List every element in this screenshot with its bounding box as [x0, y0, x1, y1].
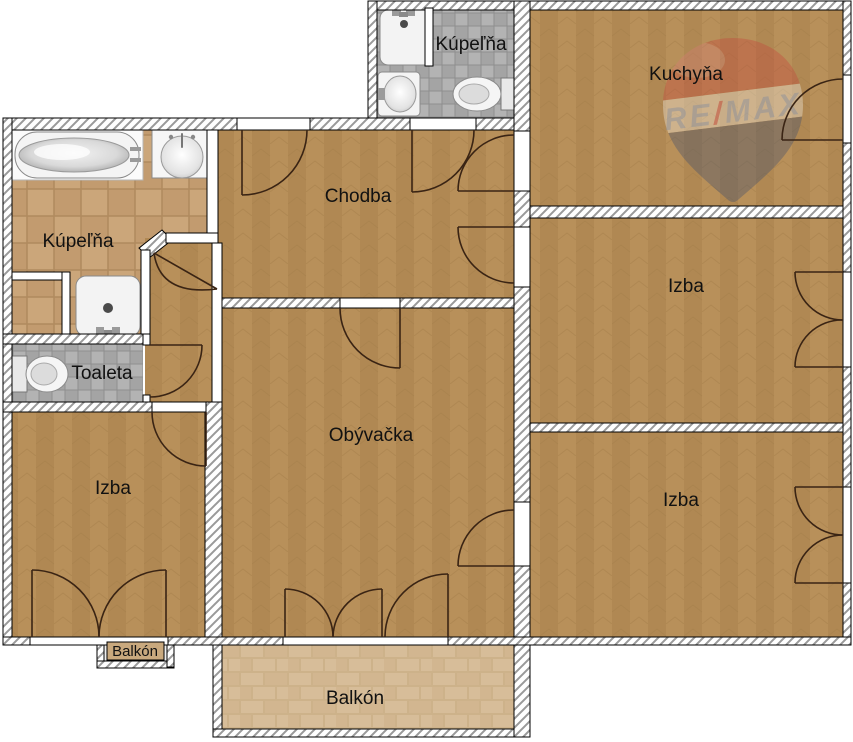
opening-living-room-door: [340, 298, 400, 308]
round-sink-icon: [152, 130, 212, 178]
wall-corridor-left: [141, 250, 150, 334]
floor-plan-canvas: RE/MAX: [0, 0, 853, 742]
wall-corridor-right: [212, 243, 222, 402]
wall-rooms-right-divider: [530, 423, 843, 432]
wall-closet-top: [12, 272, 70, 280]
remax-re: RE: [662, 97, 715, 138]
label-bathroom-top: Kúpeľňa: [435, 34, 506, 55]
label-room-right-bottom: Izba: [663, 490, 699, 511]
wall-balcony-large-right: [514, 645, 530, 737]
sink-top-icon: [378, 72, 420, 116]
wall-shower-stub: [425, 8, 433, 66]
wall-balcony-large-bottom: [213, 729, 524, 737]
floor-plan: RE/MAX: [0, 0, 853, 742]
bathtub-icon: [15, 132, 141, 178]
opening-room-right-bottom-window: [843, 487, 851, 583]
wall-balcony-small-right: [167, 645, 174, 667]
wall-top-right-section: [368, 1, 851, 10]
wall-closet-right: [62, 272, 70, 334]
toilet-top-icon: [453, 77, 515, 111]
label-kitchen: Kuchyňa: [649, 64, 723, 85]
toilet-wc-icon: [12, 356, 68, 392]
wall-toilet-right-bottom: [143, 395, 150, 402]
opening-kitchen-window: [843, 75, 851, 143]
wall-bathroom-right: [207, 130, 218, 233]
opening-bathroom-top: [410, 118, 476, 130]
label-toilet: Toaleta: [71, 363, 133, 384]
label-bathroom-main: Kúpeľňa: [42, 231, 113, 252]
wall-kitchen-room-divider: [530, 206, 843, 218]
wall-room-left-living-divider: [205, 402, 222, 637]
label-balcony-large: Balkón: [326, 688, 384, 709]
floor-living-room: [222, 308, 514, 637]
opening-balcony-large-door: [283, 637, 448, 645]
wall-balcony-small-bottom: [97, 661, 174, 668]
floor-room-right-bottom: [530, 432, 843, 637]
floor-room-right-top: [530, 218, 843, 423]
label-living-room: Obývačka: [329, 425, 414, 446]
wall-bathroom-stub: [166, 233, 218, 243]
label-balcony-small-box: Balkón: [107, 642, 164, 660]
opening-kitchen-door: [514, 131, 530, 191]
label-room-left: Izba: [95, 478, 131, 499]
opening-room-right-top-window: [843, 272, 851, 367]
opening-room-right-bottom-door: [514, 502, 530, 566]
shower-tray-main-icon: [76, 276, 140, 336]
label-balcony-small: Balkón: [112, 643, 158, 660]
floor-balcony-large: [222, 645, 514, 729]
label-room-right-top: Izba: [668, 276, 704, 297]
wall-balcony-large-left: [213, 645, 222, 737]
label-hallway: Chodba: [325, 186, 392, 207]
opening-room-right-top-door: [514, 227, 530, 287]
opening-entrance: [237, 118, 310, 130]
wall-toilet-right-top: [143, 334, 150, 345]
wall-toilet-top: [3, 334, 143, 344]
wall-left-outer: [3, 118, 12, 645]
opening-room-left-door: [152, 402, 206, 412]
wall-bathroom-top-left: [368, 1, 377, 118]
